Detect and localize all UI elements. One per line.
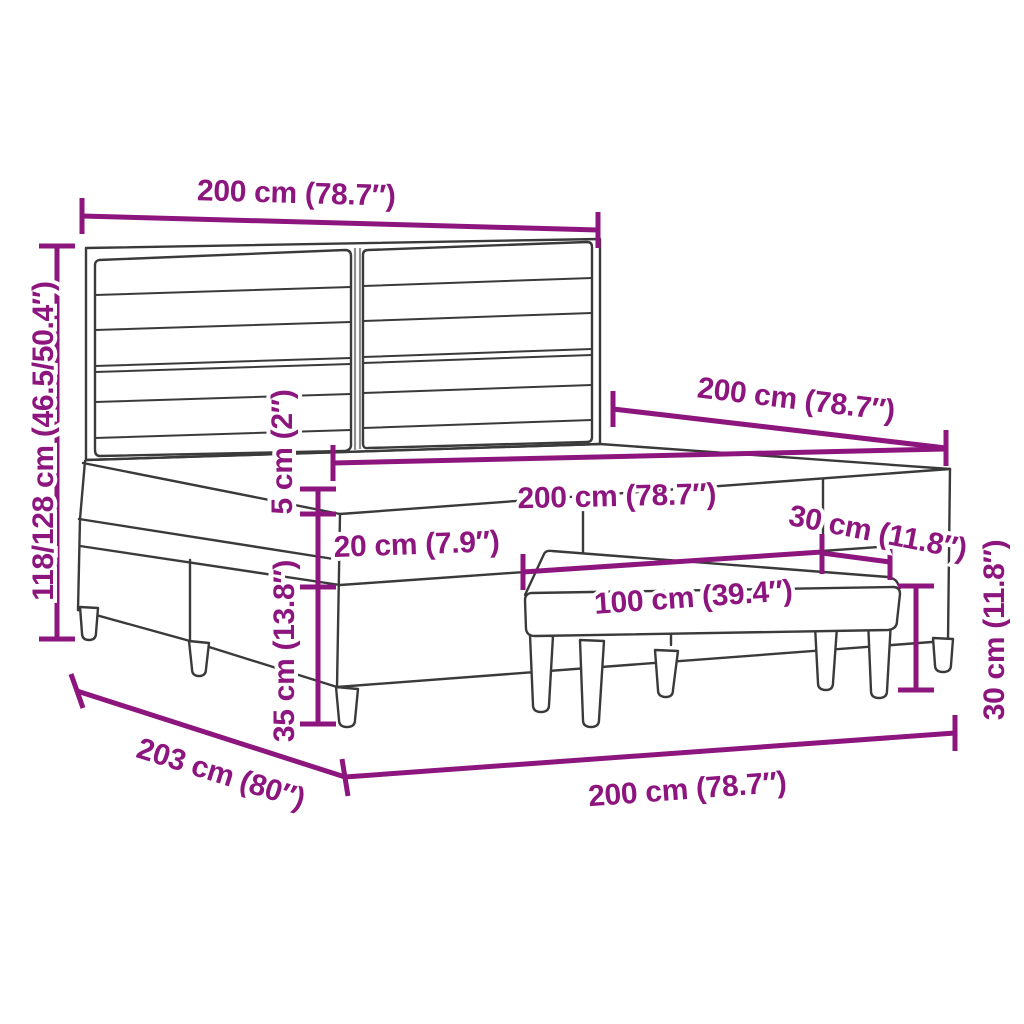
mattress-height-label: 20 cm (7.9″) bbox=[333, 525, 500, 564]
headboard-outer-frame bbox=[86, 239, 600, 460]
pillow-top-height-label: 5 cm (2″) bbox=[266, 389, 299, 514]
dim-height-stack bbox=[300, 489, 336, 724]
base-foot-bottom-edge bbox=[337, 641, 945, 687]
bed-diagram-canvas: 200 cm (78.7″) 118/128 cm (46.5/50.4″) 2… bbox=[0, 0, 1024, 1024]
bed-left-edge bbox=[78, 461, 85, 610]
headboard bbox=[86, 239, 600, 460]
base-height-label: 35 cm (13.8″) bbox=[268, 560, 301, 742]
headboard-width-label: 200 cm (78.7″) bbox=[197, 174, 396, 213]
mattress-width-label: 200 cm (78.7″) bbox=[517, 478, 716, 515]
bench-depth-label: 30 cm (11.8″) bbox=[786, 499, 970, 566]
bench-leg bbox=[655, 650, 678, 697]
bench-leg bbox=[580, 640, 604, 727]
bed-leg bbox=[933, 638, 953, 672]
dim-width-bottom bbox=[345, 715, 955, 777]
width-bottom-label: 200 cm (78.7″) bbox=[587, 766, 788, 813]
bench bbox=[525, 551, 900, 727]
bench-leg bbox=[530, 635, 553, 712]
bed-leg bbox=[336, 687, 358, 727]
depth-bottom-label: 203 cm (80″) bbox=[133, 732, 309, 816]
depth-top-label: 200 cm (78.7″) bbox=[696, 371, 897, 427]
bench-height-label: 30 cm (11.8″) bbox=[978, 540, 1011, 721]
pillowtop-left-seam bbox=[79, 519, 340, 560]
dimension-diagram: 200 cm (78.7″) 118/128 cm (46.5/50.4″) 2… bbox=[0, 0, 1024, 1024]
total-height-label: 118/128 cm (46.5/50.4″) bbox=[27, 281, 60, 600]
base-left-top-edge bbox=[80, 546, 340, 585]
bed-leg bbox=[80, 607, 98, 640]
dim-bench-height bbox=[898, 586, 934, 690]
bed-leg bbox=[189, 641, 209, 676]
bench-leg bbox=[868, 620, 891, 698]
bench-leg bbox=[815, 626, 837, 690]
